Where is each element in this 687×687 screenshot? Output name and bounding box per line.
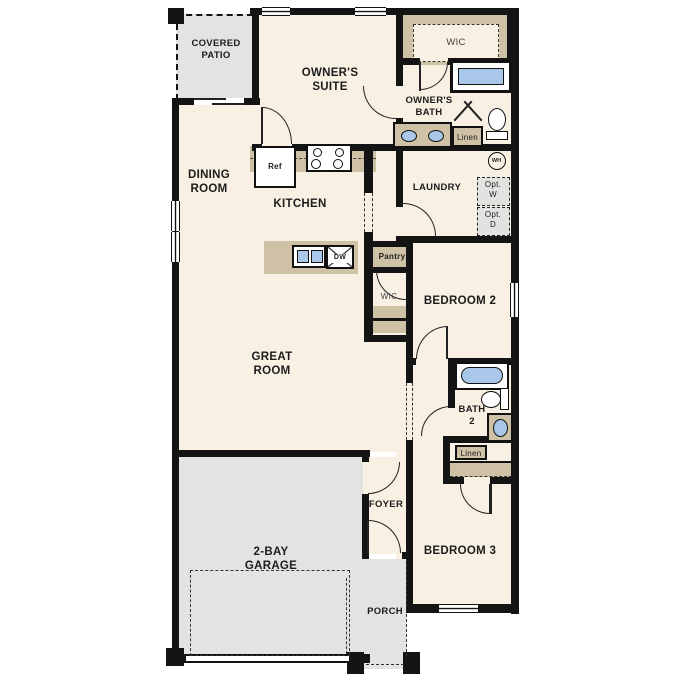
refrigerator-label: Ref — [256, 162, 294, 172]
wall — [450, 477, 464, 484]
bathtub — [455, 362, 509, 390]
bath2-label: BATH 2 — [446, 404, 498, 427]
wall — [406, 358, 416, 365]
covered-patio-label: COVERED PATIO — [179, 38, 253, 61]
water-heater-label: WH — [489, 158, 504, 165]
wall — [252, 8, 259, 105]
bedroom3-label: BEDROOM 3 — [408, 544, 512, 558]
wic2-label: WIC — [372, 292, 406, 302]
front-door-leaf — [367, 520, 369, 553]
cased-opening — [406, 383, 413, 440]
porch-dashed-edge — [366, 664, 404, 666]
slider-panel — [212, 103, 244, 105]
great-room-label: GREAT ROOM — [226, 350, 318, 378]
owners-vanity — [393, 122, 452, 148]
optional-washer: Opt. W — [477, 177, 510, 206]
stove-burner — [313, 148, 322, 157]
toilet-bowl — [488, 108, 506, 131]
toilet-tank — [500, 388, 509, 410]
owners-bath-label: OWNER'S BATH — [398, 95, 460, 118]
laundry-label: LAUNDRY — [398, 182, 476, 194]
door-leaf — [489, 484, 492, 514]
tub-basin — [461, 367, 503, 384]
water-heater: WH — [488, 152, 506, 170]
bedroom3-closet-shelf — [450, 461, 512, 477]
wall — [406, 365, 413, 383]
stove — [306, 144, 352, 172]
window — [262, 7, 290, 16]
kitchen-label: KITCHEN — [258, 197, 342, 211]
garage-label: 2-BAY GARAGE — [221, 545, 321, 573]
dishwasher: DW — [326, 245, 354, 269]
foyer-label: FOYER — [362, 499, 410, 511]
door-leaf — [261, 107, 263, 144]
wall — [362, 450, 369, 462]
window — [355, 7, 386, 16]
vanity-sink — [401, 130, 417, 142]
linen-closet-owner: Linen — [452, 126, 483, 147]
opt-d-label: Opt. D — [478, 210, 508, 231]
linen-closet-hall: Linen — [455, 445, 487, 460]
wall — [448, 363, 455, 408]
shower — [450, 60, 512, 93]
wall — [172, 450, 370, 457]
opt-w-label: Opt. W — [478, 180, 508, 201]
dishwasher-label: DW — [332, 254, 348, 263]
floor-plan: Ref DW Pantry Linen WH Opt. W Opt. D — [0, 0, 687, 687]
wall — [362, 552, 369, 559]
wall — [396, 58, 403, 86]
window — [171, 201, 180, 231]
pantry-label: Pantry — [371, 252, 413, 262]
stove-burner — [311, 159, 321, 169]
stove-burner — [335, 148, 344, 157]
wall — [396, 151, 403, 207]
door-leaf — [446, 326, 448, 359]
wall — [490, 477, 518, 484]
bedroom2-label: BEDROOM 2 — [408, 294, 512, 308]
garage-corner-block — [166, 648, 184, 666]
wall — [406, 454, 413, 611]
door-leaf — [419, 62, 421, 91]
wall — [443, 436, 450, 484]
linen-hall-label: Linen — [457, 449, 485, 459]
sink-basin — [297, 250, 309, 263]
sink-basin — [311, 250, 323, 263]
wall — [396, 236, 518, 243]
garage-door — [186, 655, 349, 662]
porch-dashed-edge — [346, 578, 348, 654]
vanity-sink — [428, 130, 444, 142]
window — [439, 604, 478, 613]
window — [171, 232, 180, 262]
owners-suite-label: OWNER'S SUITE — [282, 66, 378, 94]
linen-owner-label: Linen — [454, 133, 481, 143]
sliding-patio-door — [194, 98, 244, 105]
dining-room-label: DINING ROOM — [168, 168, 250, 196]
refrigerator: Ref — [254, 146, 296, 188]
shower-pan — [458, 68, 504, 85]
garage-door-dashed-outline — [190, 570, 350, 656]
optional-dryer: Opt. D — [477, 207, 510, 236]
cased-opening — [364, 193, 373, 232]
stove-burner — [333, 159, 343, 169]
island-sink — [292, 245, 326, 268]
porch-label: PORCH — [361, 606, 409, 618]
owners-wic-label: WIC — [413, 37, 499, 49]
toilet-tank — [486, 131, 508, 140]
slider-panel — [194, 98, 226, 100]
patio-corner-post — [168, 8, 184, 24]
